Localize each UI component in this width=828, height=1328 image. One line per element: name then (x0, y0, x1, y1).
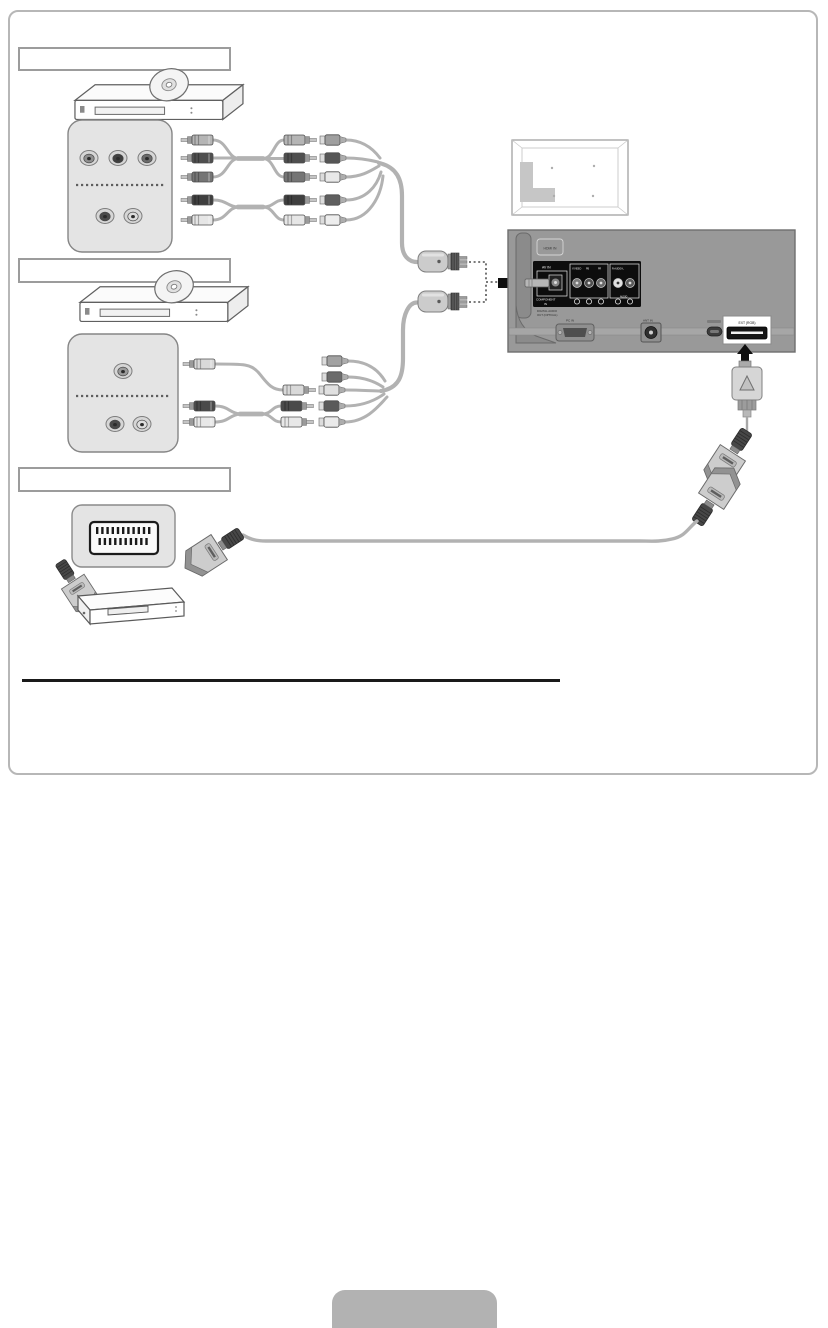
svg-text:ANT IN: ANT IN (643, 319, 653, 323)
svg-text:HDMI IN: HDMI IN (544, 247, 558, 251)
jack-pr (80, 151, 98, 166)
svg-text:PC IN: PC IN (566, 319, 574, 323)
page-number-tab (332, 1290, 497, 1328)
component-plugs-middle (284, 135, 317, 225)
jack-pb (109, 151, 127, 166)
connection-diagram: HDMI IN AV IN Y/VIDEO PB PR (0, 0, 828, 1328)
av-adapter-plug-2 (418, 291, 467, 312)
digital-audio-out-label: DIGITAL AUDIO OUT (OPTICAL) (537, 309, 558, 317)
svg-text:Y/VIDEO: Y/VIDEO (572, 269, 582, 271)
scart-adapter-plug (732, 361, 762, 432)
jack-audio-l2 (133, 417, 151, 432)
jack-video (114, 364, 132, 379)
av-adapter-plug-1 (418, 251, 467, 272)
jack-audio-r2 (106, 417, 124, 432)
scart-cable (243, 521, 697, 541)
av-component-jack-block: AV IN Y/VIDEO PB PR R-AUDIO (525, 261, 641, 307)
svg-text:IN: IN (544, 302, 547, 306)
svg-text:PB: PB (586, 269, 590, 271)
svg-text:OUT (OPTICAL): OUT (OPTICAL) (537, 313, 558, 317)
scart-wall-panel (72, 505, 175, 567)
jack-y (138, 151, 156, 166)
composite-couplers (319, 356, 348, 427)
tv-rear-location-thumbnail (512, 140, 628, 215)
svg-text:EXT (RGB): EXT (RGB) (738, 321, 755, 325)
component-couplers (320, 135, 346, 225)
dvd-player-illustration-2 (80, 266, 248, 322)
jack-audio-r (96, 209, 114, 224)
svg-text:R-AUDIO-L: R-AUDIO-L (612, 268, 624, 271)
svg-text:AV IN: AV IN (542, 266, 551, 270)
ext-rgb-scart-port: EXT (RGB) (723, 316, 771, 344)
composite-plugs (183, 359, 316, 427)
tv-back-panel: HDMI IN AV IN Y/VIDEO PB PR (508, 230, 795, 352)
dotted-connection-line (469, 262, 499, 302)
manual-page: HDMI IN AV IN Y/VIDEO PB PR (0, 0, 828, 1328)
component-plugs-left (181, 135, 213, 225)
component-device-jack-panel (68, 120, 172, 252)
svg-text:PR: PR (598, 269, 602, 271)
jack-audio-l (124, 209, 142, 224)
service-port (707, 320, 722, 336)
composite-cable-bundle (215, 303, 417, 423)
dvd-player-illustration-1 (75, 64, 243, 120)
scart-plug-left (177, 520, 249, 581)
composite-device-jack-panel (68, 334, 178, 452)
svg-text:AUDIO: AUDIO (620, 296, 627, 299)
note-divider-line (22, 679, 560, 682)
